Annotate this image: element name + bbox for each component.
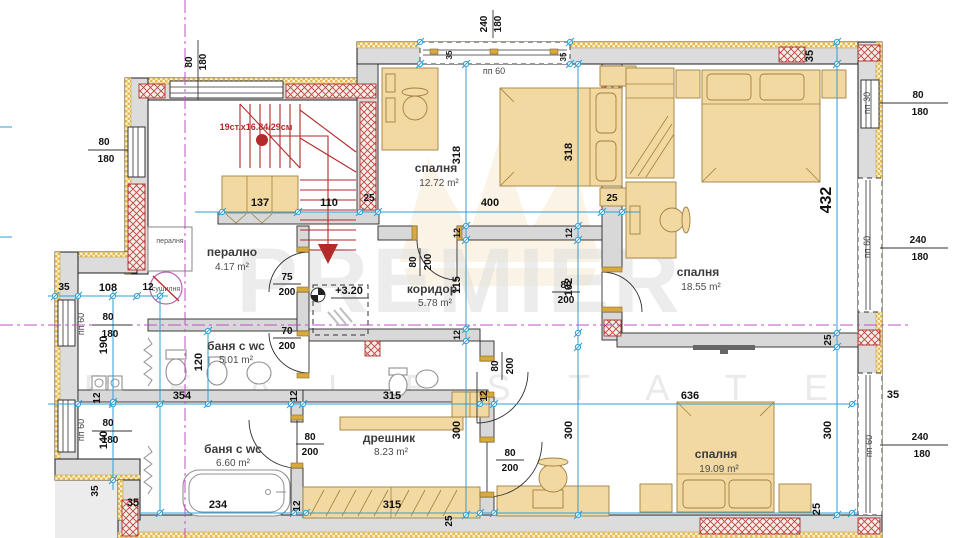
dim-label: 35 <box>90 485 101 497</box>
dim-label: 25 <box>363 193 375 204</box>
dim-label: 25 <box>823 334 834 346</box>
floor-plan-page: PREMIER R E A L E S T A T E <box>0 0 970 538</box>
room-area-closet: 8.23 m² <box>374 447 409 458</box>
dim-label: 234 <box>209 499 228 511</box>
dim-label: 315 <box>383 499 401 511</box>
dim-label: 300 <box>822 421 834 439</box>
room-label-closet: дрешник <box>363 431 416 445</box>
dim-label: 12 <box>564 228 574 238</box>
door-dim: 80 <box>490 360 501 372</box>
window-left-mid <box>58 300 75 346</box>
room-label-laundry: перално <box>207 245 257 259</box>
room-area-bedroom3: 19.09 m² <box>699 464 739 475</box>
room-label-bedroom3: спалня <box>695 447 737 461</box>
chair-bedroom2 <box>660 208 684 232</box>
dim-label: 12 <box>289 390 300 402</box>
stairs-note: 19ст.х16.84/29см <box>220 122 293 132</box>
dim-label: 12 <box>292 500 303 512</box>
door-dim: 75 <box>281 272 293 283</box>
window-dim: 80 <box>102 418 114 429</box>
window-dim: 240 <box>912 432 929 443</box>
exterior-area <box>55 478 118 538</box>
nightstand <box>779 484 811 512</box>
dim-label: 12 <box>452 228 462 238</box>
floor-plan-drawing: PREMIER R E A L E S T A T E <box>0 0 970 538</box>
window-dim: 80 <box>98 137 110 148</box>
dim-label: 12 <box>452 330 462 340</box>
dim-label: 25 <box>606 193 618 204</box>
room-area-bedroom1: 12.72 m² <box>419 178 459 189</box>
dim-label: 315 <box>383 390 401 402</box>
room-label-bedroom1: спалня <box>415 161 457 175</box>
dim-label: 25 <box>444 515 455 527</box>
window-dim: 180 <box>912 252 929 263</box>
tv-shelf <box>693 345 755 350</box>
door-dim: 200 <box>302 447 319 458</box>
door-dim: 70 <box>281 326 293 337</box>
window-dim: 80 <box>184 56 195 68</box>
bathtub <box>183 470 290 516</box>
room-area-corridor: 5.78 m² <box>418 298 453 309</box>
nightstand <box>822 70 846 98</box>
dim-label: 108 <box>99 282 117 294</box>
level-mark: +3.20 <box>335 285 363 297</box>
dim-label: 432 <box>818 187 835 214</box>
window-dim: 240 <box>910 235 927 246</box>
room-area-laundry: 4.17 m² <box>215 262 250 273</box>
dim-label: 35 <box>887 389 899 401</box>
room-label-bath1: баня с wc <box>207 339 265 353</box>
door-dim: 80 <box>408 256 419 268</box>
room-area-bath2: 6.60 m² <box>216 458 251 469</box>
dim-label: 636 <box>681 390 699 402</box>
window-type: пп 60 <box>76 313 86 335</box>
room-area-bath1: 5.01 m² <box>219 355 254 366</box>
dim-label: 354 <box>173 390 192 402</box>
window-left-upper <box>128 127 145 177</box>
dim-label: 12 <box>479 390 490 402</box>
window-dim: 180 <box>198 53 209 70</box>
window-dim: 180 <box>914 449 931 460</box>
room-area-bedroom2: 18.55 m² <box>681 282 721 293</box>
wardrobe-bedroom2 <box>626 68 674 178</box>
dim-label: 35 <box>559 52 568 61</box>
chair-bedroom3 <box>539 464 567 492</box>
door-dim: 200 <box>505 357 516 374</box>
door-dim: 80 <box>504 448 516 459</box>
window-type: пп 60 <box>483 66 505 76</box>
door-dim: 80 <box>304 432 316 443</box>
window-dim: 180 <box>912 107 929 118</box>
door-dim: 200 <box>279 287 296 298</box>
dim-label: 137 <box>251 197 269 209</box>
door-dim: 200 <box>423 253 434 270</box>
door-dim: 200 <box>558 295 575 306</box>
room-label-corridor: коридор <box>407 282 457 296</box>
nightstand <box>676 70 700 98</box>
dim-label: 12 <box>142 282 154 293</box>
window-dim: 240 <box>479 15 490 32</box>
window-type: пп 60 <box>862 236 872 258</box>
window-dim: 180 <box>493 15 504 32</box>
room-label-bath2: баня с wc <box>204 442 262 456</box>
window-dim: 80 <box>102 312 114 323</box>
chair-bedroom1 <box>403 96 427 120</box>
window-type: пп 60 <box>76 419 86 441</box>
dim-label: 35 <box>445 50 454 59</box>
window-top-left <box>170 81 283 98</box>
dim-label: 25 <box>811 503 823 515</box>
dim-label: 400 <box>481 197 499 209</box>
window-left-lower <box>58 400 75 452</box>
window-dim: 180 <box>102 329 119 340</box>
dim-label: 318 <box>563 143 575 161</box>
window-dim: 180 <box>98 154 115 165</box>
dim-label: 300 <box>451 421 463 439</box>
dim-label: 300 <box>563 421 575 439</box>
room-label-bedroom2: спалня <box>677 265 719 279</box>
dim-label: 35 <box>58 282 70 293</box>
window-type: пп 60 <box>864 435 874 457</box>
dim-label: 35 <box>804 50 816 62</box>
dim-label: 120 <box>193 353 205 371</box>
nightstand <box>640 484 672 512</box>
dim-label: 12 <box>92 392 103 404</box>
window-type: пп 30 <box>862 92 872 114</box>
dim-label: 35 <box>127 497 139 509</box>
washer-label: пералня <box>156 238 183 245</box>
door-dim: 200 <box>502 463 519 474</box>
dim-label: 110 <box>320 197 338 209</box>
door-dim: 200 <box>279 341 296 352</box>
window-dim: 180 <box>102 435 119 446</box>
window-dim: 80 <box>912 90 924 101</box>
door-dim: 80 <box>560 280 572 291</box>
shelf-closet-room <box>340 417 463 430</box>
